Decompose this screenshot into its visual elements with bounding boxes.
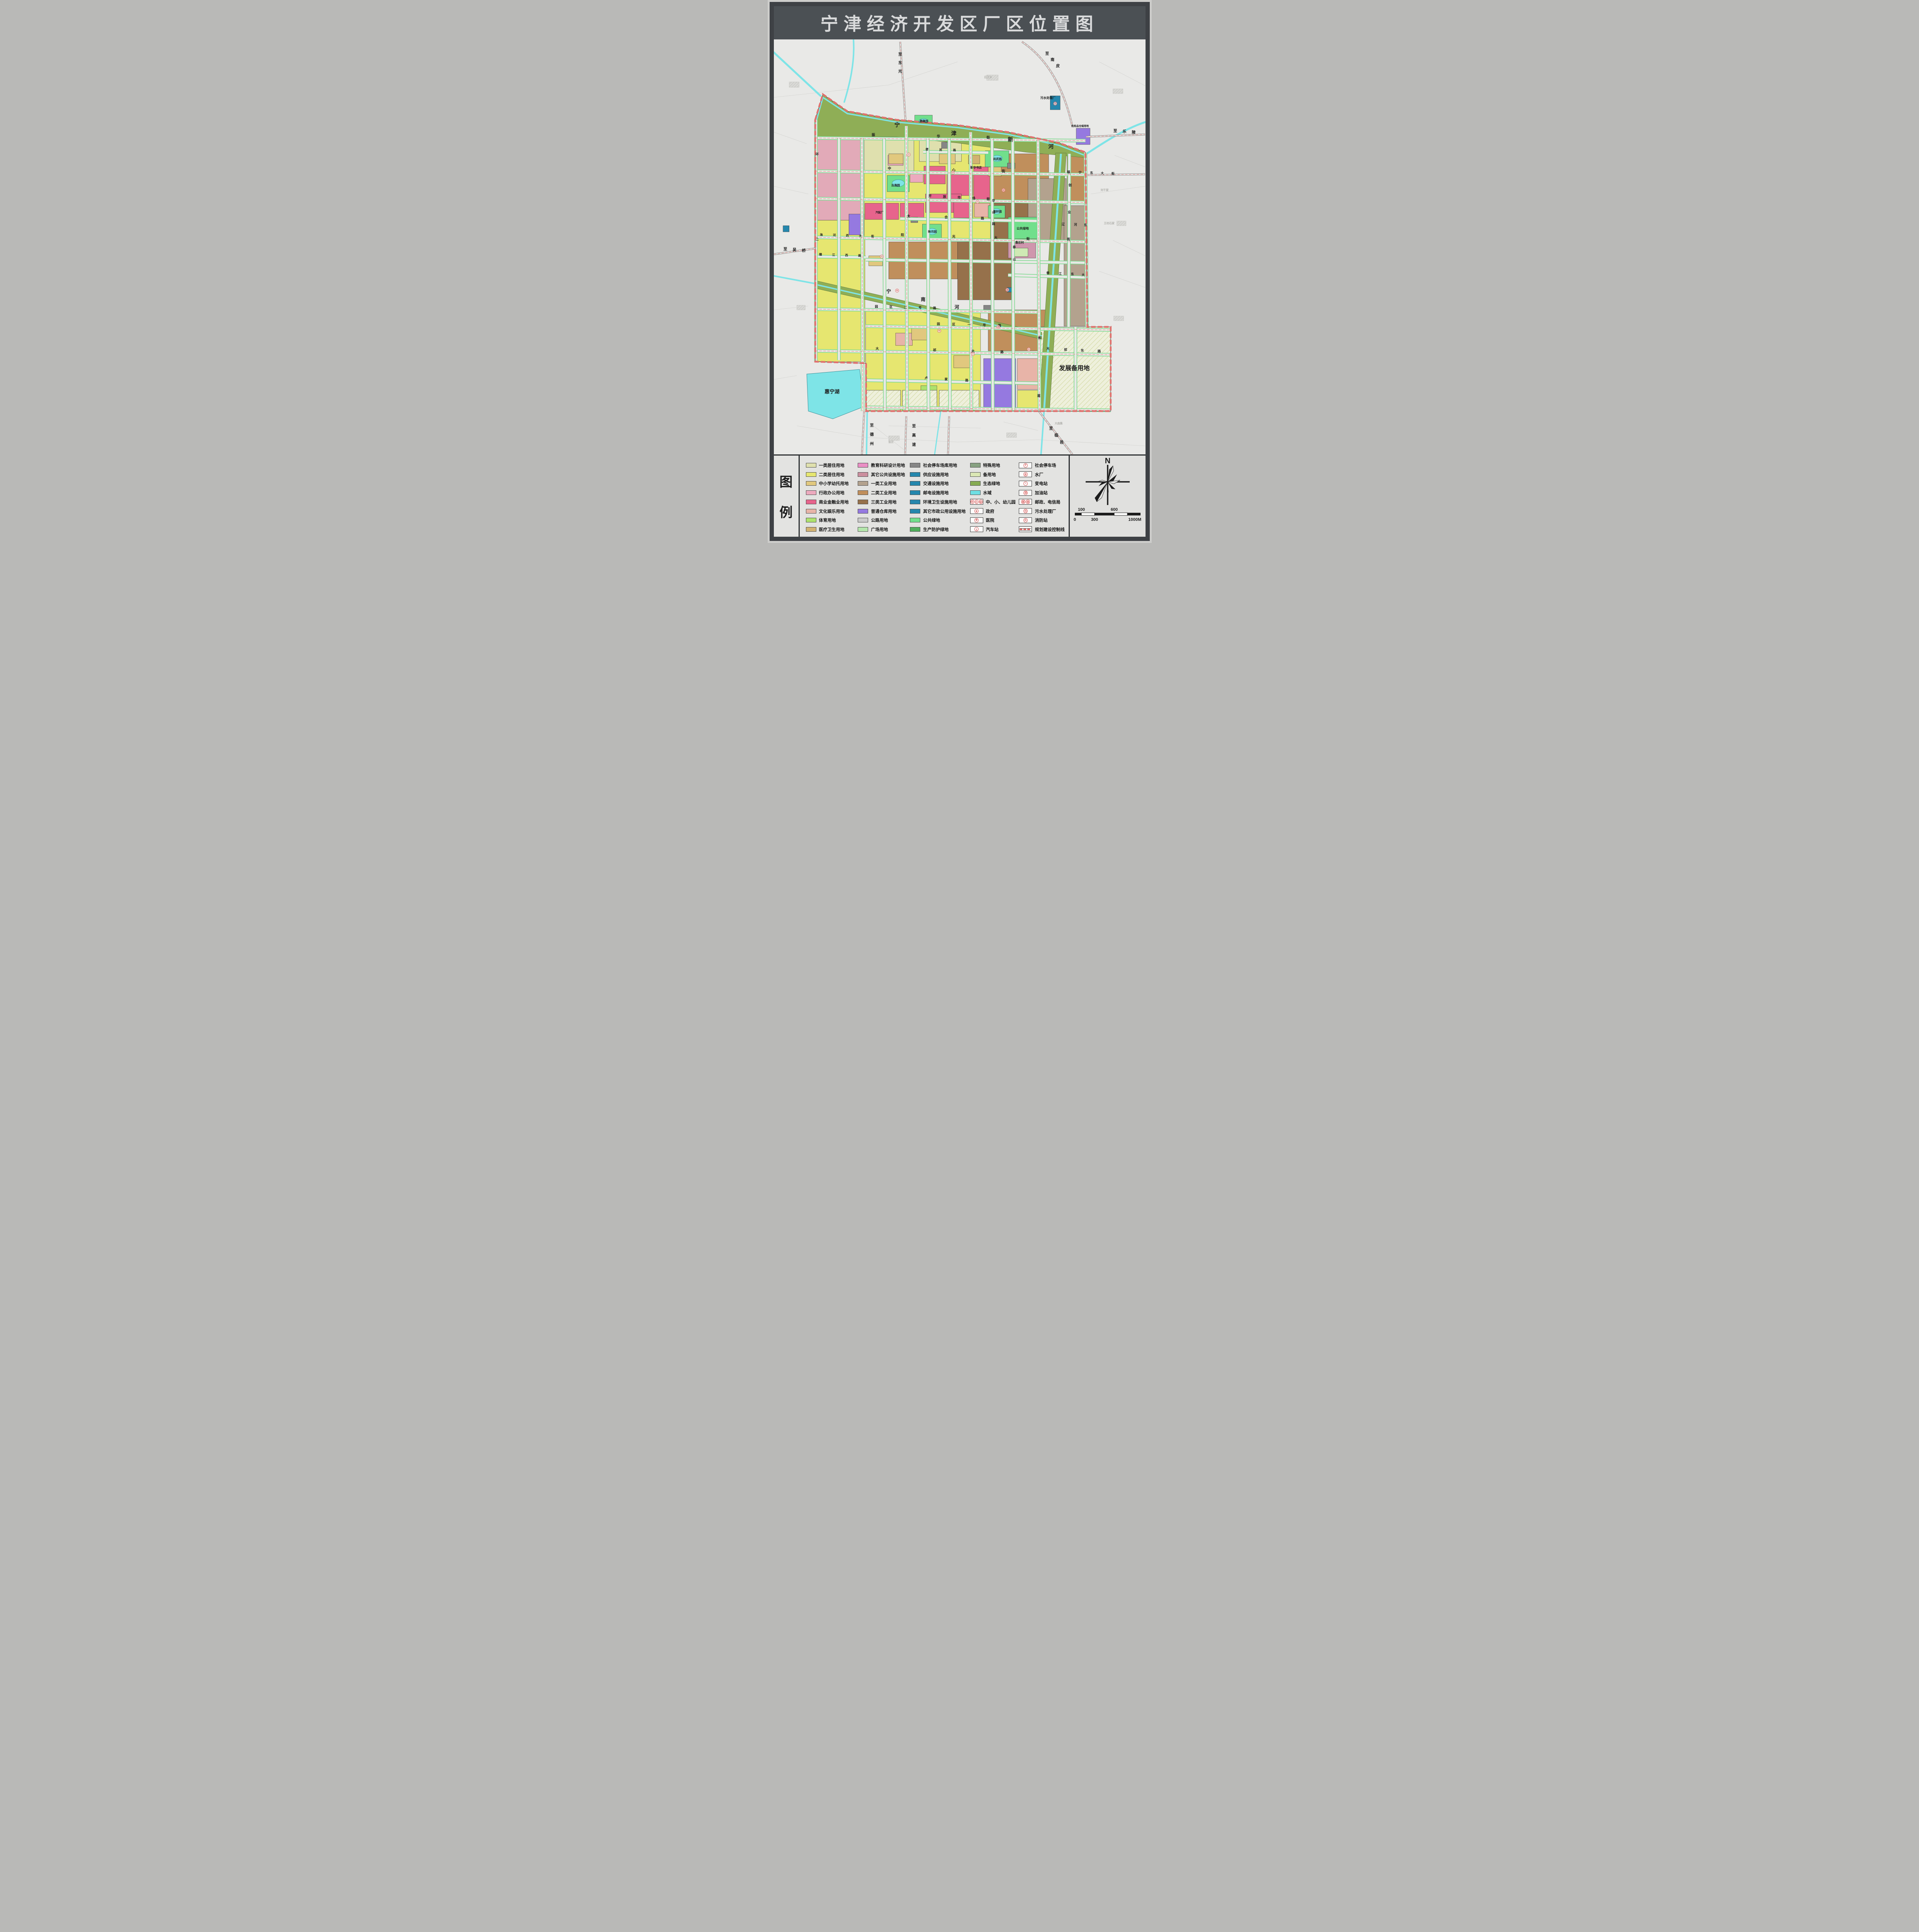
legend-item-label: 邮政、电信局: [1035, 499, 1060, 505]
map-label: 至: [912, 424, 916, 429]
legend-item-label: 二类居住用地: [819, 471, 845, 478]
map-label: 东: [1090, 171, 1093, 175]
legend-item-label: 医疗卫生用地: [819, 526, 845, 532]
map-label: 业: [1067, 210, 1071, 214]
legend-item-label: 环境卫生设施用地: [923, 499, 957, 505]
map-label: 街: [1026, 237, 1030, 241]
map-label: 高: [912, 433, 916, 438]
legend-item-label: 供应设施用地: [923, 471, 948, 478]
legend-swatch: [910, 490, 920, 495]
map-facility-icon: 油: [1005, 288, 1009, 292]
map-label: 大曲集: [1054, 422, 1063, 425]
map-label: 园: [875, 305, 878, 308]
map-label: 路: [933, 306, 937, 310]
map-facility-icon: 污: [1053, 102, 1057, 105]
map-label: 江: [1059, 272, 1062, 276]
map-label: 东: [898, 60, 902, 65]
map-label: 创: [1068, 183, 1071, 187]
legend-item-label: 其它市政公用设施用地: [923, 508, 965, 514]
legend-swatch: [970, 463, 981, 468]
map-label: 街: [986, 135, 990, 139]
legend-item-label: 社会停车场库用地: [923, 462, 957, 468]
map-label: 园: [937, 322, 940, 326]
legend-item-label: 社会停车场: [1035, 462, 1056, 468]
map-label: 大: [1101, 171, 1104, 175]
legend-swatch: [858, 472, 868, 477]
legend-swatch: [858, 463, 868, 468]
svg-text:小: 小: [1028, 348, 1030, 351]
legend-caption-char: 图: [780, 471, 793, 490]
legend-item: 油加油站: [1019, 488, 1064, 497]
map-label: 德: [869, 432, 874, 437]
legend-item: 污污水处理厂: [1019, 507, 1064, 515]
map-label: 西: [845, 253, 848, 257]
map-facility-icon: 中: [951, 171, 955, 174]
svg-text:幼: 幼: [1002, 189, 1005, 192]
map-label: 环: [815, 152, 819, 156]
legend-item-label: 规划建设控制线: [1035, 526, 1064, 532]
map-label: 便: [925, 147, 928, 151]
legend-item: 交通设施用地: [910, 479, 967, 488]
legend-grid: 一类居住用地二类居住用地中小学幼托用地行政办公用地商业金融业用地文化娱乐用地体育…: [800, 456, 1069, 537]
legend-panel: 图 例 一类居住用地二类居住用地中小学幼托用地行政办公用地商业金融业用地文化娱乐…: [774, 454, 1146, 537]
map-area[interactable]: 宁津新河宁南河振华街中心街便民路开放市场街太合路阳光大街海河西大街赣江西路香江东…: [774, 39, 1146, 454]
legend-column-2: 教育科研设计用地其它公共设施用地一类工业用地二类工业用地三类工业用地普通仓库用地…: [858, 461, 907, 534]
map-facility-icon: 小: [1027, 348, 1030, 351]
legend-item-label: 变电站: [1035, 480, 1047, 486]
legend-item: 供应设施用地: [910, 470, 967, 479]
map-label: 卢: [925, 376, 928, 380]
map-label: 吴: [792, 248, 796, 252]
legend-item-label: 消防站: [1035, 517, 1047, 523]
svg-text:小: 小: [972, 352, 974, 355]
legend-symbol-icon: ϟ: [1019, 481, 1032, 486]
map-svg[interactable]: 宁津新河宁南河振华街中心街便民路开放市场街太合路阳光大街海河西大街赣江西路香江东…: [774, 39, 1146, 454]
legend-swatch: [910, 463, 920, 468]
legend-item-label: 中、小、幼儿园: [986, 499, 1016, 505]
legend-symbol-icon: 火: [1019, 517, 1032, 523]
map-label: 东: [1081, 349, 1084, 352]
legend-swatch: [806, 527, 816, 532]
map-label: 发展备用地: [1059, 364, 1090, 372]
legend-item: 生态绿地: [970, 479, 1016, 488]
map-label: 区: [889, 305, 892, 309]
map-label: 新: [1008, 136, 1013, 143]
legend-caption: 图 例: [774, 456, 800, 537]
legend-swatch: [858, 500, 868, 504]
legend-item: 三类工业用地: [858, 498, 907, 506]
map-label: 云逸园: [891, 183, 899, 187]
map-label: 路: [1000, 350, 1004, 354]
legend-item: 备用地: [970, 470, 1016, 479]
map-label: 汽配厂: [875, 211, 884, 214]
legend-item-label: 特殊用地: [983, 462, 1000, 468]
legend-item: ★政府: [970, 507, 1016, 515]
map-label: 街: [986, 197, 990, 201]
legend-item: 体育用地: [806, 516, 855, 524]
svg-text:1000M: 1000M: [1128, 517, 1141, 522]
legend-item: 文化娱乐用地: [806, 507, 855, 515]
map-label: 海: [820, 233, 823, 236]
legend-swatch: [910, 481, 920, 486]
legend-item: 一类工业用地: [858, 479, 907, 488]
map-label: 公共绿地: [1016, 226, 1029, 230]
page: 宁津经济开发区厂区位置图: [768, 0, 1152, 543]
map-label: 桥: [802, 248, 806, 253]
legend-item-label: 教育科研设计用地: [871, 462, 905, 468]
map-label: 宁: [1078, 170, 1081, 174]
legend-item-label: 公路用地: [871, 517, 888, 523]
map-label: 尚武园: [993, 157, 1001, 161]
map-label: 街: [1066, 237, 1070, 241]
legend-symbol-icon: 污: [1019, 508, 1032, 514]
legend-column-4: 特殊用地备用地生态绿地水域中小幼中、小、幼儿园★政府✚医院Y汽车站: [970, 461, 1016, 534]
map-label: 王柱石家: [1104, 221, 1115, 225]
legend-item-label: 三类工业用地: [871, 499, 896, 505]
legend-item-label: 普通仓库用地: [871, 508, 896, 514]
svg-text:幼: 幼: [997, 325, 999, 328]
svg-text:十: 十: [880, 255, 883, 258]
legend-column-3: 社会停车场库用地供应设施用地交通设施用地邮电设施用地环境卫生设施用地其它市政公用…: [910, 461, 967, 534]
map-label: 皮: [1056, 63, 1060, 68]
legend-swatch: [910, 527, 920, 532]
map-label: 华: [992, 199, 995, 202]
map-label: 速: [912, 442, 916, 447]
legend-swatch: [910, 472, 920, 477]
map-facility-icon: 中: [895, 289, 899, 293]
legend-item: ✚医院: [970, 516, 1016, 524]
legend-item-label: 生态绿地: [983, 480, 1000, 486]
map-label: 二: [815, 237, 819, 241]
legend-item: 特殊用地: [970, 461, 1016, 469]
map-label: 华: [937, 134, 940, 138]
map-label: 祁: [1064, 348, 1067, 352]
legend-swatch: [806, 490, 816, 495]
map-label: 至: [1045, 51, 1049, 56]
svg-text:600: 600: [1110, 507, 1117, 512]
legend-item: 邮电设施用地: [910, 488, 967, 497]
compass-scale-panel: N: [1069, 456, 1146, 537]
legend-item: 水水厂: [1019, 470, 1064, 479]
legend-item-label: 生产防护绿地: [923, 526, 948, 532]
legend-item-label: 邮电设施用地: [923, 490, 948, 496]
map-label: 道: [1037, 394, 1040, 398]
map-label: 号: [918, 306, 921, 310]
map-label: 邑: [1060, 440, 1064, 445]
legend-swatch: [970, 490, 981, 495]
legend-swatch: [806, 472, 816, 477]
legend-item: 社会停车场库用地: [910, 461, 967, 469]
legend-item-label: 政府: [986, 508, 994, 514]
legend-item-label: 汽车站: [986, 526, 999, 532]
map-label: 中: [887, 166, 891, 170]
legend-swatch: [806, 509, 816, 514]
legend-item: 中小学幼托用地: [806, 479, 855, 488]
map-label: 后王乡: [984, 75, 992, 79]
legend-swatch: [806, 500, 816, 504]
map-label: 河: [1048, 143, 1054, 150]
legend-item: 行政办公用地: [806, 488, 855, 497]
legend-item: 中小幼中、小、幼儿园: [970, 498, 1016, 506]
legend-item: 一类居住用地: [806, 461, 855, 469]
legend-item-label: 文化娱乐用地: [819, 508, 845, 514]
legend-item: 火消防站: [1019, 516, 1064, 524]
legend-symbol-icon: ★: [970, 508, 983, 514]
map-label: 路: [965, 378, 969, 382]
control-line-sample-icon: [1019, 526, 1032, 532]
map-label: 辽: [1062, 222, 1065, 226]
legend-item: 其它市政公用设施用地: [910, 507, 967, 515]
legend-item-label: 一类居住用地: [819, 462, 845, 468]
map-label: 河: [1074, 223, 1077, 226]
map-label: 东: [1071, 272, 1074, 276]
legend-item: 广场用地: [858, 525, 907, 534]
map-label: 街: [1001, 169, 1005, 173]
legend-item: ϟ变电站: [1019, 479, 1064, 488]
map-label: 东: [1084, 223, 1087, 227]
map-label: 太: [906, 214, 910, 218]
map-label: 区: [952, 323, 955, 326]
legend-swatch: [910, 518, 920, 522]
map-label: 路: [981, 216, 984, 220]
legend-item: 环境卫生设施用地: [910, 498, 967, 506]
legend-item-label: 公共绿地: [923, 517, 940, 523]
map-label: 新华书店: [970, 165, 982, 169]
legend-item-label: 商业金融业用地: [819, 499, 849, 505]
map-sheet-frame: 宁津经济开发区厂区位置图: [770, 2, 1150, 541]
map-label: 西: [846, 234, 849, 237]
map-label: 宁: [886, 288, 891, 294]
map-label: 民: [939, 148, 942, 151]
map-label: 张庄: [888, 440, 894, 444]
map-label: 南: [921, 296, 925, 302]
legend-swatch: [910, 509, 920, 514]
map-label: 陵: [1132, 130, 1136, 135]
legend-item: 生产防护绿地: [910, 525, 967, 534]
map-label: 路: [992, 222, 995, 226]
map-label: 福: [1066, 170, 1070, 174]
map-facility-icon: 小: [976, 200, 979, 204]
legend-swatch: [858, 527, 868, 532]
map-label: 南: [1050, 57, 1054, 62]
legend-item: 教育科研设计用地: [858, 461, 907, 469]
map-label: 津: [951, 130, 956, 137]
map-label: 刘干家: [1100, 188, 1108, 192]
map-label: 詹庄村: [1015, 240, 1024, 244]
map-label: 憩趣园: [920, 119, 928, 123]
legend-item: 水域: [970, 488, 1016, 497]
map-label: 河: [833, 233, 836, 237]
map-facility-icon: 小: [907, 153, 910, 156]
map-label: 大: [875, 347, 879, 350]
map-facility-icon: 小: [971, 352, 974, 356]
legend-item-label: 中小学幼托用地: [819, 480, 849, 486]
map-label: 省: [1037, 336, 1041, 340]
legend-item: 公路用地: [858, 516, 907, 524]
legend-item: 其它公共设施用地: [858, 470, 907, 479]
legend-item: 商业金融业用地: [806, 498, 855, 506]
map-label: 场: [972, 196, 975, 200]
map-label: 泰: [1012, 245, 1016, 249]
map-label: 阳: [901, 233, 904, 237]
map-label: 污水处理厂: [1040, 96, 1056, 100]
map-label: 合: [944, 215, 948, 219]
map-label: 至: [870, 423, 874, 428]
legend-symbol-icon: ✚: [970, 517, 983, 523]
svg-text:300: 300: [1091, 517, 1098, 522]
legend-item-label: 医院: [986, 517, 994, 523]
map-label: 路: [858, 253, 861, 257]
north-label: N: [1105, 457, 1110, 465]
svg-text:中: 中: [938, 329, 940, 332]
map-label: 街: [870, 234, 874, 238]
legend-item: 邮信邮政、电信局: [1019, 498, 1064, 506]
legend-swatch: [806, 463, 816, 468]
map-label: 路: [953, 148, 956, 152]
legend-swatch: [970, 472, 981, 477]
legend-item-label: 水厂: [1035, 471, 1043, 478]
legend-item-label: 其它公共设施用地: [871, 471, 905, 478]
svg-text:100: 100: [1078, 507, 1084, 512]
map-label: 江: [832, 253, 835, 257]
map-label: 放: [942, 195, 946, 199]
legend-item-label: 加油站: [1035, 490, 1047, 496]
legend-item: 二类居住用地: [806, 470, 855, 479]
legend-item-label: 体育用地: [819, 517, 836, 523]
map-label: 映月园: [928, 230, 937, 233]
svg-text:油: 油: [1006, 288, 1008, 291]
legend-item-label: 广场用地: [871, 526, 888, 532]
map-label: 路: [1097, 349, 1101, 353]
map-label: 至: [1049, 426, 1053, 431]
map-label: 宁: [894, 122, 900, 128]
map-facility-icon: 幼: [996, 325, 1000, 329]
legend-swatch: [806, 481, 816, 486]
legend-item: Y汽车站: [970, 525, 1016, 534]
legend-swatch: [858, 490, 868, 495]
map-label: 大: [994, 236, 998, 240]
map-facility-icon: 幼: [1002, 189, 1005, 192]
map-label: 至: [898, 52, 902, 57]
map-label: 大: [859, 234, 862, 238]
map-label: 大: [1081, 273, 1084, 277]
legend-swatch: [806, 518, 816, 522]
map-facility-icon: 十: [880, 255, 884, 259]
legend-symbol-icon: 油: [1019, 490, 1032, 496]
map-label: 香: [1046, 271, 1049, 275]
legend-item-label: 备用地: [983, 471, 996, 478]
map-label: 市: [957, 196, 961, 199]
svg-text:0: 0: [1073, 517, 1076, 522]
legend-item: 普通仓库用地: [858, 507, 907, 515]
legend-swatch: [858, 518, 868, 522]
map-label: 开: [928, 194, 932, 198]
map-label: 至: [783, 247, 787, 252]
legend-swatch: [858, 481, 868, 486]
compass-rose: N: [1079, 457, 1137, 507]
map-label: 祁: [933, 348, 936, 352]
map-label: 号: [982, 323, 986, 327]
map-label: 光: [897, 69, 902, 74]
map-label: 家: [944, 377, 947, 381]
legend-item-label: 污水处理厂: [1035, 508, 1056, 514]
legend-column-1: 一类居住用地二类居住用地中小学幼托用地行政办公用地商业金融业用地文化娱乐用地体育…: [806, 461, 855, 534]
map-label: 二: [904, 306, 907, 309]
legend-caption-char: 例: [780, 502, 793, 521]
svg-text:小: 小: [907, 153, 909, 156]
legend-item: 规划建设控制线: [1019, 525, 1064, 534]
map-label: 一: [967, 323, 971, 327]
legend-swatch: [910, 500, 920, 504]
legend-symbol-icon: 邮信: [1019, 499, 1032, 505]
map-label: 光: [952, 235, 955, 238]
legend-swatch: [858, 509, 868, 514]
map-label: 振: [872, 133, 875, 137]
map-label: 河: [954, 304, 959, 310]
map-label: 乐: [1122, 129, 1126, 134]
legend-item-label: 一类工业用地: [871, 480, 896, 486]
map-label: 赣: [819, 252, 822, 256]
map-label: 危险品仓储用地: [1071, 124, 1089, 128]
legend-symbol-icon: P: [1019, 463, 1032, 468]
map-label: 临: [1054, 433, 1058, 438]
svg-text:中: 中: [896, 289, 898, 292]
legend-item: 公共绿地: [910, 516, 967, 524]
title-bar: 宁津经济开发区厂区位置图: [774, 6, 1146, 39]
legend-symbol-icon: 中小幼: [970, 499, 983, 505]
legend-symbol-icon: Y: [970, 526, 983, 532]
svg-text:小: 小: [976, 200, 979, 203]
legend-item-label: 二类工业用地: [871, 490, 896, 496]
map-label: 街: [1111, 172, 1114, 175]
map-label: 州: [869, 442, 874, 446]
legend-symbol-icon: 水: [1019, 471, 1032, 477]
legend-item: 医疗卫生用地: [806, 525, 855, 534]
legend-item: 二类工业用地: [858, 488, 907, 497]
legend-item: P社会停车场: [1019, 461, 1064, 469]
map-facility-icon: 中: [937, 329, 941, 333]
scale-bar: 100 600 0 300 1000M: [1071, 507, 1144, 524]
map-label: 大: [1046, 347, 1050, 350]
legend-column-5: P社会停车场水水厂ϟ变电站油加油站邮信邮政、电信局污污水处理厂火消防站规划建设控…: [1019, 461, 1064, 534]
legend-item-label: 行政办公用地: [819, 490, 845, 496]
map-label: 墨轩园: [993, 209, 1001, 213]
map-label: 惠宁湖: [824, 389, 840, 395]
map-label: 山: [1013, 257, 1016, 261]
svg-text:中: 中: [952, 171, 954, 174]
legend-item-label: 水域: [983, 490, 992, 496]
page-title: 宁津经济开发区厂区位置图: [821, 10, 1099, 36]
map-label: 至: [1113, 129, 1117, 133]
svg-text:污: 污: [1054, 102, 1056, 105]
legend-item-label: 交通设施用地: [923, 480, 948, 486]
legend-swatch: [970, 481, 981, 486]
